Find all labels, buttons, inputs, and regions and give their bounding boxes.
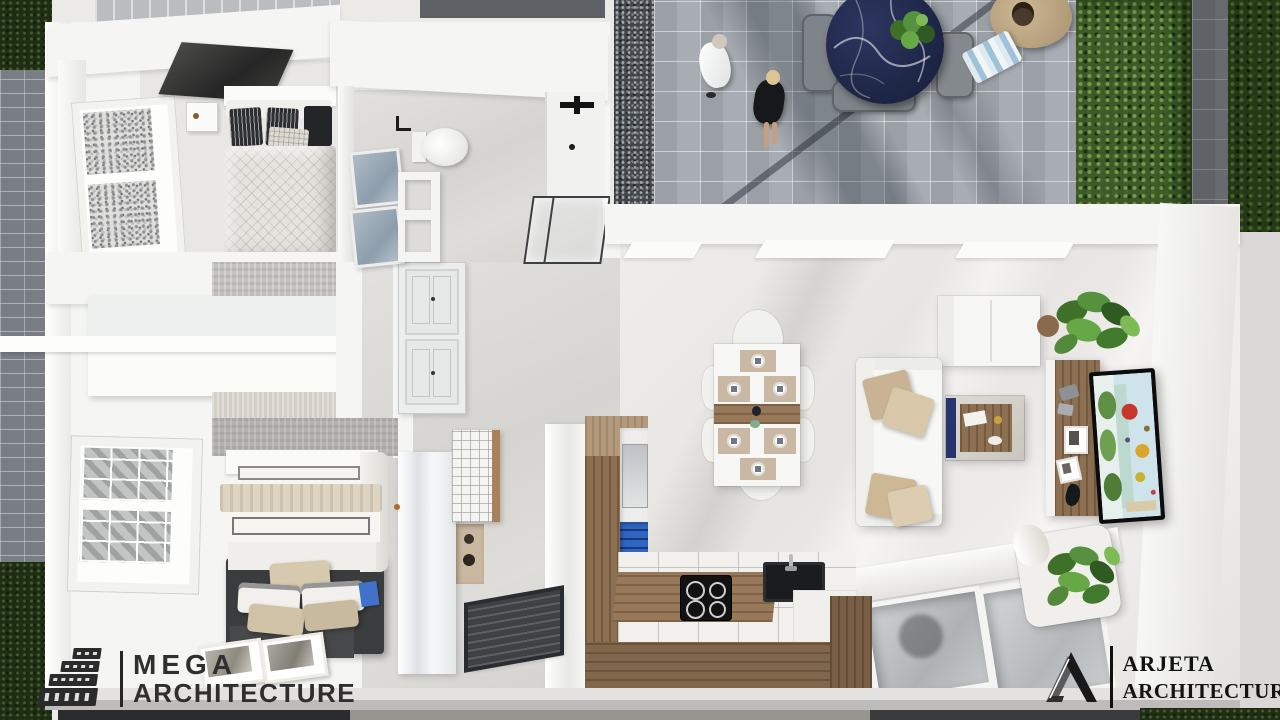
window-view-stone: [80, 510, 171, 564]
door-hinge: [431, 371, 435, 375]
entry-niche: [456, 524, 484, 584]
framed-photo: [1064, 426, 1088, 454]
window-beam: [755, 240, 895, 258]
burner-ring: [686, 581, 705, 600]
entry-grid-shelf: [452, 430, 500, 522]
planter-plant: [1028, 538, 1128, 624]
napkin: [755, 466, 761, 472]
door-inset: [412, 276, 430, 324]
logo-divider: [1110, 646, 1113, 708]
bathroom-mirror: [349, 148, 405, 209]
tv-screen: [1093, 372, 1161, 520]
toilet: [412, 128, 468, 166]
framed-photo: [1056, 456, 1083, 484]
plate: [751, 354, 765, 368]
bed2-duvet-framed: [224, 512, 380, 542]
black-vase: [1064, 483, 1083, 508]
napkin: [755, 358, 761, 364]
table-cup: [750, 420, 760, 428]
bed2: [212, 450, 390, 660]
knob: [193, 113, 199, 119]
coffee-table-wood-inner: [960, 404, 1012, 452]
tall-unit-glass: [622, 444, 648, 508]
bedroom1-window: [72, 97, 186, 276]
table-plant: [882, 8, 942, 60]
bed1: [224, 86, 336, 268]
plate: [727, 434, 741, 448]
bed2-frame-line: [238, 466, 360, 480]
architectural-render: MEGA ARCHITECTURE ARJETA ARCHITECTURE: [0, 0, 1280, 720]
coffee-table-navy-edge: [946, 398, 956, 458]
person-leg: [772, 122, 777, 144]
bed2-pillow-beige: [247, 603, 306, 637]
napkin: [777, 438, 783, 444]
armchair-back: [938, 296, 954, 366]
shelf-niche: [405, 180, 431, 210]
decor-gray: [1057, 403, 1074, 416]
sofa: [856, 358, 942, 526]
logo-divider: [120, 651, 123, 707]
person-head: [766, 70, 780, 85]
table-bottle: [752, 406, 761, 416]
arjeta-logo-line1: ARJETA: [1123, 650, 1280, 678]
coffee-table-dish: [988, 436, 1002, 445]
living-top-wall: [605, 204, 1240, 244]
person-standing-black-dress: [750, 70, 792, 156]
mega-architecture-logo: MEGA ARCHITECTURE: [34, 646, 356, 712]
placemat: [718, 428, 750, 454]
gravel-border-strip: [610, 0, 658, 232]
door-hinge: [431, 297, 435, 301]
duvet-border-line: [232, 517, 370, 535]
large-plant: [1032, 286, 1144, 368]
person-head: [712, 34, 727, 49]
door-handle-dot: [569, 144, 575, 150]
window-view-gravel: [88, 180, 160, 249]
glass-shadow-blob: [896, 611, 946, 661]
window-beam: [955, 242, 1074, 258]
armchair: [938, 296, 1040, 366]
shelf-wood-edge: [492, 430, 500, 522]
person-leg: [764, 122, 769, 148]
photo: [1069, 431, 1079, 445]
decor-plate: [464, 534, 474, 544]
cross-v: [574, 96, 580, 114]
burner-ring: [709, 601, 726, 618]
toilet-bracket: [396, 116, 411, 131]
coffee-table-gold-item: [994, 416, 1002, 424]
door-panel: [405, 269, 459, 335]
window-view-stone: [81, 448, 172, 502]
shelf-niche: [405, 220, 431, 252]
hedge-main: [1076, 0, 1194, 218]
sideboard-white-edge: [1046, 360, 1055, 516]
napkin: [731, 386, 737, 392]
arjeta-logo-text: ARJETA ARCHITECTURE: [1123, 650, 1280, 704]
placemat: [740, 350, 776, 372]
armchair-cushion-line: [990, 300, 992, 362]
bed2-cream-blanket: [220, 484, 382, 512]
kitchen-counter: [585, 550, 872, 690]
shaded-pavers-between-hedges: [1192, 0, 1232, 230]
window-view-gravel: [83, 108, 155, 175]
tv: [1089, 368, 1165, 524]
faucet-base: [785, 566, 797, 571]
wall-socket: [394, 504, 400, 510]
bathroom-shelf-unit: [398, 172, 440, 262]
shower-glass: [523, 196, 611, 264]
decor-plate: [463, 554, 475, 566]
window-beam: [623, 242, 702, 258]
upper-wardrobe-top: [420, 0, 605, 18]
placemat: [764, 428, 796, 454]
entry-glossy-wardrobe: [398, 452, 456, 674]
plate: [751, 462, 765, 476]
toilet-bowl: [422, 128, 468, 166]
ceiling-cross-fixture: [560, 96, 594, 114]
mega-building-icon: [34, 646, 110, 712]
arjeta-a-icon: [1042, 646, 1100, 708]
arjeta-logo-line2: ARCHITECTURE: [1123, 678, 1280, 704]
door-inset: [433, 349, 451, 397]
bedroom2-window: [68, 436, 202, 593]
coffee-table: [946, 396, 1024, 460]
bed2-pillow-beige: [303, 599, 360, 631]
patio: [654, 0, 1078, 212]
bathroom-mirror: [349, 206, 405, 269]
decor-gray: [1058, 384, 1079, 402]
shower-glass-edge: [544, 198, 555, 262]
mega-logo-line1: MEGA: [133, 651, 356, 680]
person-seated-head: [1012, 2, 1034, 26]
dining-table: [714, 344, 800, 486]
person-standing-white: [698, 34, 734, 100]
plate: [773, 434, 787, 448]
cooktop: [681, 576, 731, 620]
placemat: [764, 376, 796, 402]
bed1-dark-pillow: [229, 107, 264, 147]
door-panel: [405, 339, 459, 405]
blue-label: [358, 581, 379, 607]
napkin: [777, 386, 783, 392]
wall-unit-box: [186, 102, 218, 132]
burner-ring: [686, 600, 705, 619]
burner-ring: [709, 582, 726, 599]
placemat: [740, 458, 776, 480]
counter-right-side: [830, 596, 872, 690]
door-inset: [412, 349, 430, 397]
mega-logo-text: MEGA ARCHITECTURE: [133, 651, 356, 706]
placemat: [718, 376, 750, 402]
counter-front-edge: [585, 642, 872, 690]
plate: [727, 382, 741, 396]
bed1-duvet: [224, 146, 336, 268]
arjeta-architecture-logo: ARJETA ARCHITECTURE: [1042, 642, 1280, 712]
plate: [773, 382, 787, 396]
person-foot: [706, 92, 716, 98]
bottom-edge-mid: [350, 710, 870, 720]
photo: [1062, 463, 1072, 474]
napkin: [731, 438, 737, 444]
person-body: [751, 78, 787, 126]
door-inset: [433, 276, 451, 324]
mega-logo-line2: ARCHITECTURE: [133, 680, 356, 707]
interior-double-doors: [398, 262, 466, 414]
